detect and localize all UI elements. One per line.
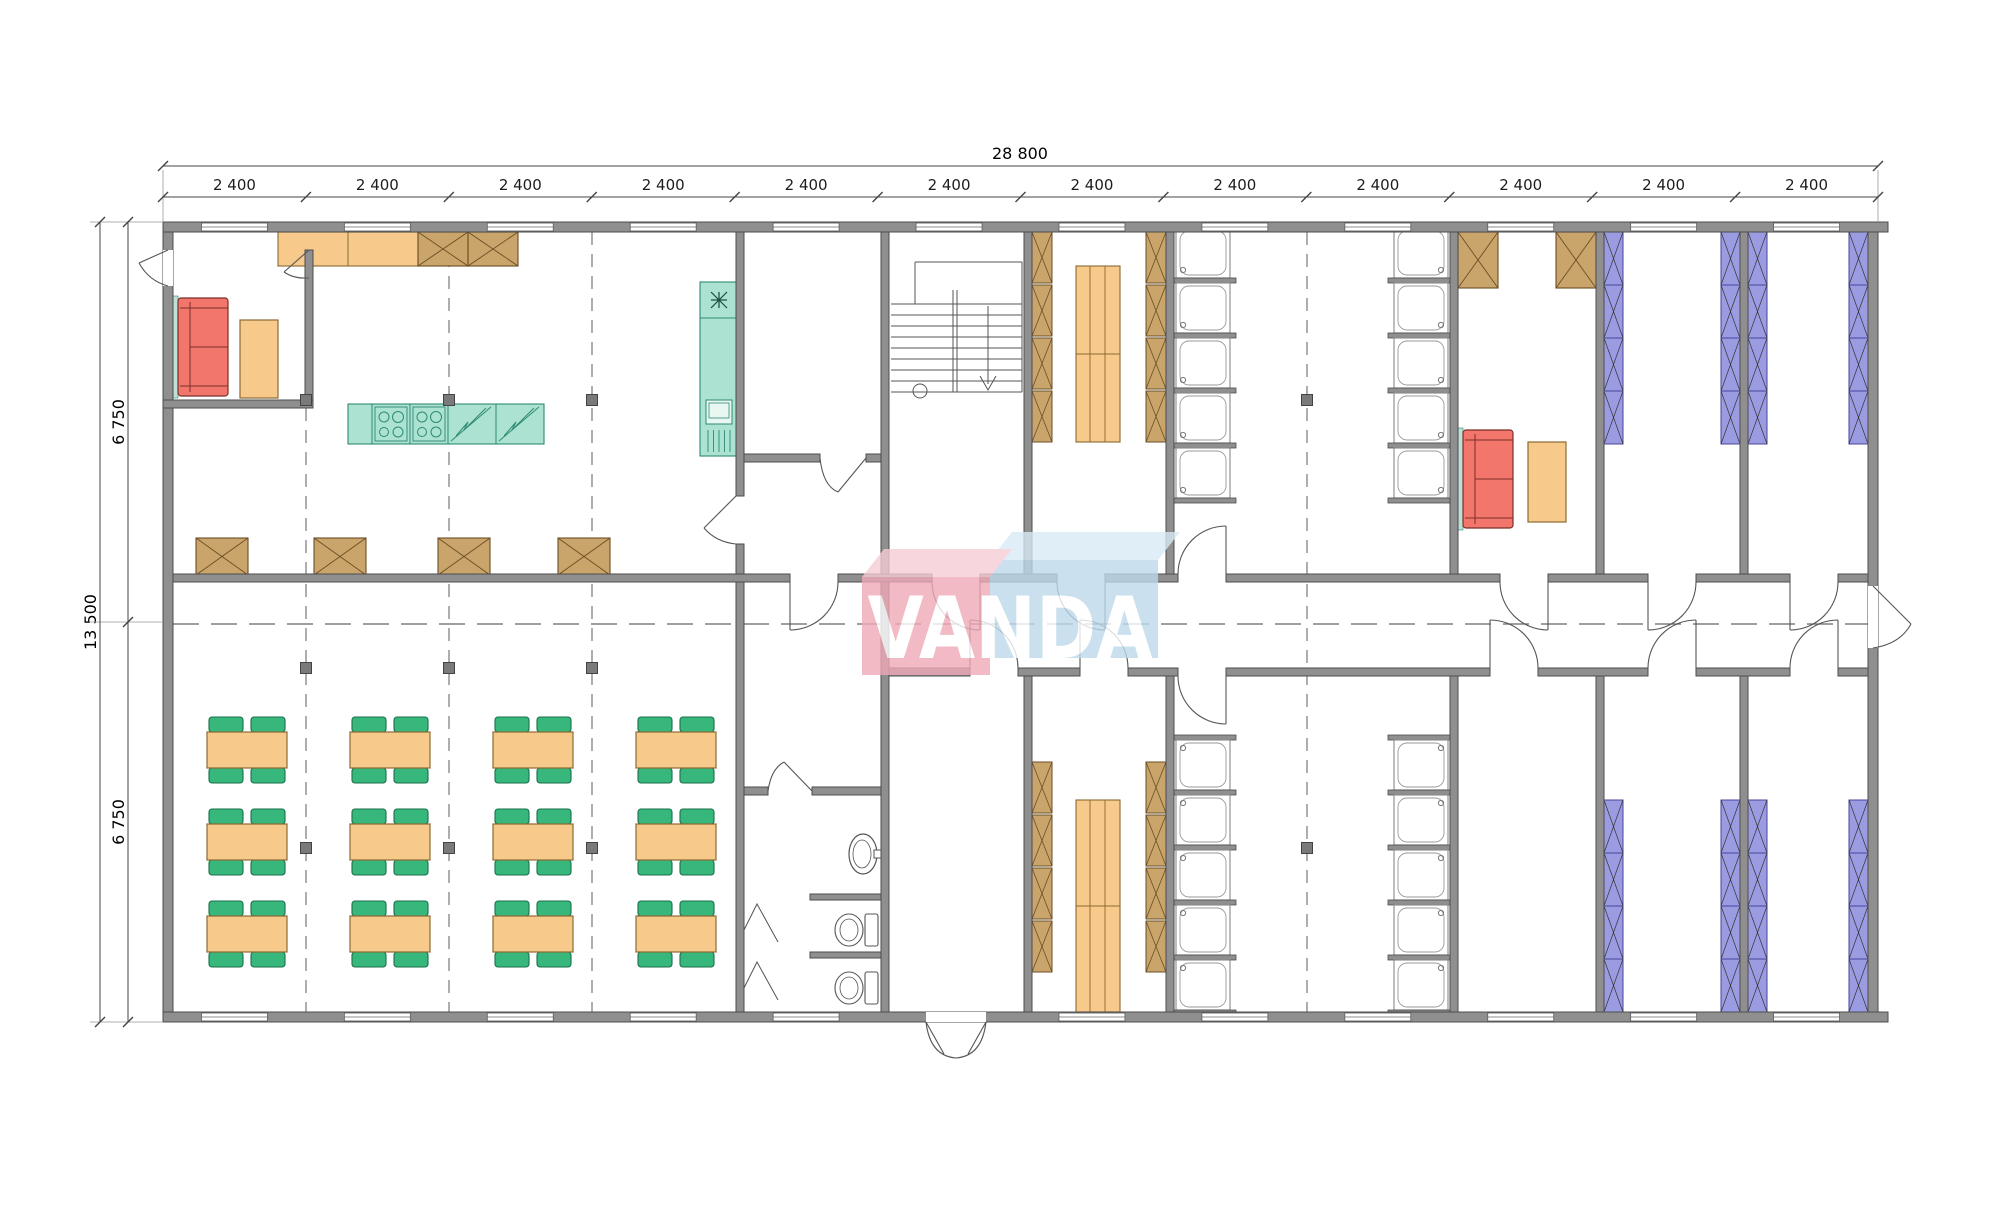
dining-set xyxy=(350,901,430,967)
dining-set xyxy=(350,717,430,783)
interior-wall xyxy=(1450,676,1458,1012)
shower-divider xyxy=(1174,735,1236,740)
column-marker xyxy=(444,843,455,854)
shower-room-bottom xyxy=(1174,735,1450,1015)
chair xyxy=(209,952,243,967)
shower-divider xyxy=(1388,333,1450,338)
door-swing xyxy=(968,1022,986,1054)
chair xyxy=(537,901,571,916)
shower-stall xyxy=(1176,740,1230,790)
column-marker xyxy=(444,395,455,406)
dimension-left xyxy=(90,217,163,1027)
dining-area xyxy=(207,717,716,967)
chair xyxy=(537,768,571,783)
chair xyxy=(394,860,428,875)
shower-divider xyxy=(1388,790,1450,795)
chair xyxy=(209,768,243,783)
toilet-tank xyxy=(865,914,878,946)
column-marker xyxy=(301,663,312,674)
dimension-top: 2 4002 4002 4002 4002 4002 4002 4002 400… xyxy=(158,161,1883,222)
fridge-sink-unit xyxy=(700,282,738,456)
side-table xyxy=(240,320,278,398)
door-swing xyxy=(838,458,866,492)
sanitary-area xyxy=(738,834,881,1004)
interior-wall xyxy=(1024,676,1032,1012)
dining-table xyxy=(493,824,573,860)
interior-wall xyxy=(1024,232,1032,574)
chair xyxy=(680,952,714,967)
door-swing xyxy=(926,1022,956,1058)
chair xyxy=(352,809,386,824)
bay-dimension-label: 2 400 xyxy=(213,176,256,194)
interior-wall xyxy=(1696,574,1790,582)
door-swing xyxy=(1648,620,1696,668)
interior-wall xyxy=(305,250,313,408)
shower-divider xyxy=(1174,900,1236,905)
chair xyxy=(394,952,428,967)
exterior-wall-bottom xyxy=(163,1012,1888,1022)
shower-divider xyxy=(1174,498,1236,503)
dining-set xyxy=(350,809,430,875)
basin-tap xyxy=(874,850,881,858)
bay-dimension-label: 2 400 xyxy=(928,176,971,194)
chair xyxy=(638,901,672,916)
dining-table xyxy=(207,824,287,860)
shower-stall xyxy=(1176,850,1230,900)
chair xyxy=(680,717,714,732)
wall xyxy=(744,454,820,462)
bay-dimension-label: 2 400 xyxy=(1499,176,1542,194)
column-marker xyxy=(301,395,312,406)
bay-dimension-label: 2 400 xyxy=(499,176,542,194)
bay-dimension-label: 2 400 xyxy=(1642,176,1685,194)
door-swing xyxy=(768,762,784,791)
door-swing xyxy=(1873,624,1911,648)
dining-table xyxy=(207,916,287,952)
chair xyxy=(638,717,672,732)
chair xyxy=(209,809,243,824)
shower-divider xyxy=(1174,443,1236,448)
shower-stall xyxy=(1394,960,1448,1010)
chair xyxy=(638,809,672,824)
shower-divider xyxy=(1388,498,1450,503)
shower-stall xyxy=(1394,283,1448,333)
chair xyxy=(638,860,672,875)
watermark-text: VANDA xyxy=(868,579,1153,679)
shower-divider xyxy=(1388,735,1450,740)
interior-wall xyxy=(1740,232,1748,574)
shower-divider xyxy=(1388,845,1450,850)
wall xyxy=(163,400,313,408)
chair xyxy=(352,860,386,875)
door-swing xyxy=(1178,676,1226,724)
dining-table xyxy=(636,824,716,860)
watermark-logo: VANDA xyxy=(862,532,1180,679)
door-swing xyxy=(1873,586,1911,624)
logo-box-blue-top xyxy=(990,532,1180,560)
wall xyxy=(866,454,881,462)
dining-table xyxy=(493,916,573,952)
shower-stall xyxy=(1394,393,1448,443)
shower-stall xyxy=(1176,795,1230,845)
interior-wall xyxy=(1166,232,1174,574)
shower-stall xyxy=(1176,448,1230,498)
shower-divider xyxy=(1174,790,1236,795)
shower-stall xyxy=(1394,338,1448,388)
chair xyxy=(537,952,571,967)
chair xyxy=(495,901,529,916)
shower-stall xyxy=(1176,960,1230,1010)
chair xyxy=(495,809,529,824)
column-marker xyxy=(587,843,598,854)
shower-divider xyxy=(1174,955,1236,960)
interior-wall xyxy=(173,574,790,582)
entry-lounge-room xyxy=(173,296,278,398)
shower-divider xyxy=(1174,333,1236,338)
chair xyxy=(352,952,386,967)
column-marker xyxy=(1302,843,1313,854)
dining-table xyxy=(350,732,430,768)
chair xyxy=(495,860,529,875)
exterior-wall-top xyxy=(163,222,1888,232)
column-marker xyxy=(587,395,598,406)
shower-stall xyxy=(1176,393,1230,443)
bay-dimension-label: 2 400 xyxy=(785,176,828,194)
chair xyxy=(251,860,285,875)
shower-divider xyxy=(1174,845,1236,850)
dining-table xyxy=(350,916,430,952)
dining-set xyxy=(493,717,573,783)
wall xyxy=(810,952,881,958)
logo-box-pink-top xyxy=(862,549,1012,577)
changing-room-top xyxy=(1032,232,1166,442)
chair xyxy=(251,717,285,732)
interior-wall xyxy=(1450,232,1458,574)
bay-dimension-label: 2 400 xyxy=(356,176,399,194)
dining-set xyxy=(493,809,573,875)
shower-stall xyxy=(1394,228,1448,278)
chair xyxy=(352,717,386,732)
shower-stall xyxy=(1176,905,1230,955)
chair xyxy=(251,952,285,967)
interior-wall xyxy=(736,232,744,496)
chair xyxy=(251,809,285,824)
door-swing xyxy=(956,1022,986,1058)
shower-stall xyxy=(1394,448,1448,498)
wall-finish-strip xyxy=(1458,428,1463,530)
shower-stall xyxy=(1394,795,1448,845)
door-swing xyxy=(704,496,736,528)
interior-wall xyxy=(1226,574,1500,582)
half-depth-dimension-label-upper: 6 750 xyxy=(109,399,128,445)
dining-table xyxy=(207,732,287,768)
shower-stall xyxy=(1176,283,1230,333)
column-marker xyxy=(587,663,598,674)
wall xyxy=(810,894,881,900)
chair xyxy=(209,860,243,875)
interior-wall xyxy=(1740,676,1748,1012)
shower-divider xyxy=(1388,900,1450,905)
bay-dimension-label: 2 400 xyxy=(1070,176,1113,194)
door-swing xyxy=(926,1022,944,1054)
interior-wall xyxy=(1538,668,1648,676)
chair xyxy=(495,952,529,967)
shower-room-top xyxy=(1174,223,1450,503)
dining-set xyxy=(636,809,716,875)
shower-stall xyxy=(1176,338,1230,388)
chair xyxy=(352,901,386,916)
interior-wall xyxy=(1166,676,1174,1012)
floor-plan-page: 28 800 13 500 6 750 6 750 2 4002 4002 40… xyxy=(0,0,2000,1216)
wall-finish-strip xyxy=(173,296,178,398)
door-swing xyxy=(784,762,812,791)
interior-wall xyxy=(736,582,744,1012)
exterior-wall-left xyxy=(163,232,173,1012)
interior-wall xyxy=(1696,668,1790,676)
floor-plan-canvas: 28 800 13 500 6 750 6 750 2 4002 4002 40… xyxy=(0,0,2000,1216)
door-swing xyxy=(1790,620,1838,668)
overall-width-dimension-label: 28 800 xyxy=(992,144,1048,163)
chair xyxy=(680,809,714,824)
shower-stall xyxy=(1394,905,1448,955)
lounge-room xyxy=(1458,232,1596,530)
dining-set xyxy=(493,901,573,967)
shower-divider xyxy=(1388,278,1450,283)
chair xyxy=(495,768,529,783)
door-swing xyxy=(820,458,838,492)
dining-set xyxy=(207,809,287,875)
shower-divider xyxy=(1388,388,1450,393)
dining-set xyxy=(207,901,287,967)
shower-divider xyxy=(1388,443,1450,448)
interior-wall xyxy=(1226,668,1490,676)
chair xyxy=(394,809,428,824)
shower-stall xyxy=(1394,740,1448,790)
dining-set xyxy=(636,717,716,783)
bay-dimension-label: 2 400 xyxy=(1213,176,1256,194)
chair xyxy=(209,717,243,732)
bay-dimension-label: 2 400 xyxy=(1356,176,1399,194)
bedroom-beds xyxy=(1604,232,1868,1012)
dining-set xyxy=(207,717,287,783)
door-swing xyxy=(1648,582,1696,630)
shower-divider xyxy=(1388,955,1450,960)
interior-wall xyxy=(1838,574,1868,582)
interior-wall xyxy=(881,232,889,574)
door-swing xyxy=(1178,526,1226,574)
chair xyxy=(352,768,386,783)
column-marker xyxy=(1302,395,1313,406)
interior-wall xyxy=(1596,232,1604,574)
chair xyxy=(251,768,285,783)
side-table xyxy=(1528,442,1566,522)
chair xyxy=(680,901,714,916)
column-marker xyxy=(444,663,455,674)
door-swing xyxy=(1790,582,1838,630)
chair xyxy=(394,901,428,916)
toilet-tank xyxy=(865,972,878,1004)
shower-divider xyxy=(1174,388,1236,393)
chair xyxy=(638,768,672,783)
wall xyxy=(812,787,881,795)
dining-table xyxy=(350,824,430,860)
fridge-star-icon xyxy=(711,292,727,308)
chair xyxy=(394,717,428,732)
changing-room-bottom xyxy=(1032,762,1166,1012)
dining-set xyxy=(636,901,716,967)
chair xyxy=(638,952,672,967)
dining-table xyxy=(493,732,573,768)
shower-stall xyxy=(1394,850,1448,900)
shower-divider xyxy=(1174,278,1236,283)
column-marker xyxy=(301,843,312,854)
chair xyxy=(680,768,714,783)
dining-table xyxy=(636,732,716,768)
chair xyxy=(209,901,243,916)
bay-dimension-label: 2 400 xyxy=(642,176,685,194)
door-swing xyxy=(704,528,736,544)
wall xyxy=(744,787,768,795)
shower-stall xyxy=(1176,228,1230,278)
half-depth-dimension-label-lower: 6 750 xyxy=(109,799,128,845)
chair xyxy=(394,768,428,783)
chair xyxy=(537,717,571,732)
staircase xyxy=(891,262,1022,398)
interior-wall xyxy=(1838,668,1868,676)
chair xyxy=(537,860,571,875)
interior-wall xyxy=(736,544,744,574)
dining-table xyxy=(636,916,716,952)
door-swing xyxy=(790,582,838,630)
chair xyxy=(495,717,529,732)
chair xyxy=(680,860,714,875)
chair xyxy=(251,901,285,916)
interior-wall xyxy=(1548,574,1648,582)
interior-wall xyxy=(1596,676,1604,1012)
stair-newel xyxy=(913,384,927,398)
chair xyxy=(537,809,571,824)
bay-dimension-label: 2 400 xyxy=(1785,176,1828,194)
sink-basin xyxy=(706,400,732,424)
